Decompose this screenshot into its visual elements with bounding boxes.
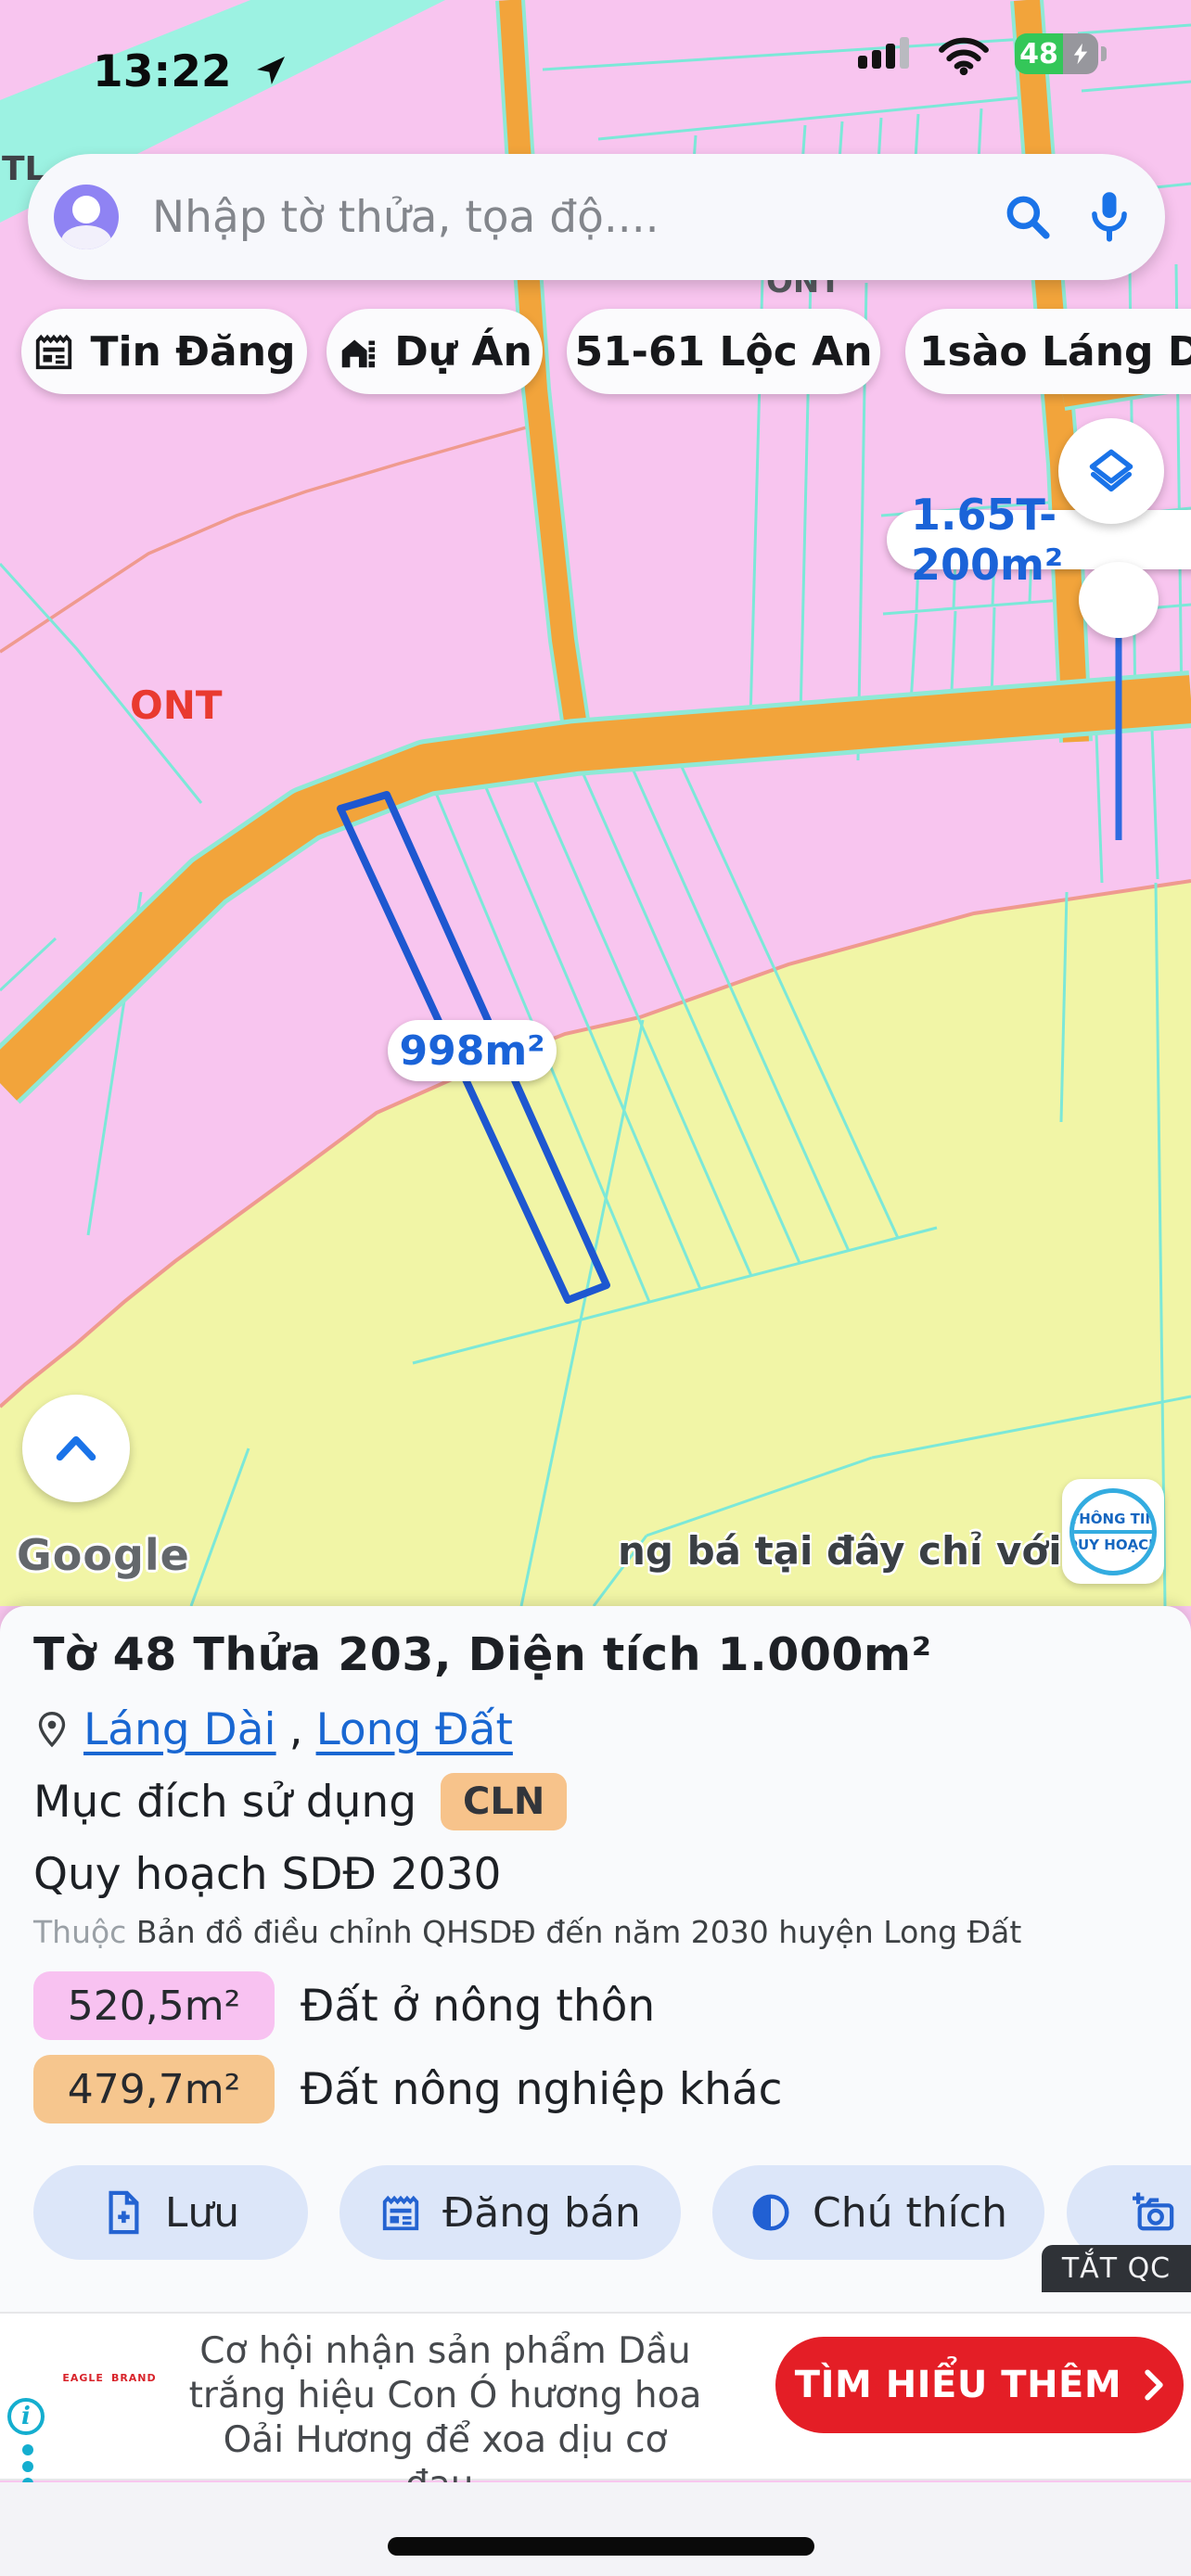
location-arrow-icon (252, 52, 289, 89)
parcel-area-text: 998m² (400, 1027, 545, 1075)
chip-saved-search-1[interactable]: 51-61 Lộc An (567, 309, 880, 394)
listing-news-icon (379, 2191, 422, 2234)
signal-bar (886, 44, 895, 69)
purpose-code-badge: CLN (441, 1773, 567, 1830)
chip-saved-search-2[interactable]: 1sào Láng Dà (905, 309, 1191, 394)
contrast-icon (749, 2191, 792, 2234)
purpose-label: Mục đích sử dụng (33, 1777, 416, 1828)
chevron-up-icon (51, 1430, 101, 1467)
signal-bar (858, 56, 867, 69)
search-bar[interactable]: Nhập tờ thửa, tọa độ.... (28, 154, 1165, 280)
google-watermark: Google (17, 1530, 190, 1580)
avatar[interactable] (54, 185, 119, 249)
purpose-row: Mục đích sử dụng CLN (33, 1773, 567, 1830)
zone-area-badge: 520,5m² (33, 1971, 275, 2040)
wifi-icon (937, 35, 991, 76)
selected-parcel-area-pill: 998m² (388, 1020, 557, 1081)
zone-label: Đất ở nông thôn (301, 1981, 655, 2032)
chip-du-an[interactable]: Dự Án (327, 309, 543, 394)
post-listing-button[interactable]: Đăng bán (339, 2165, 681, 2260)
save-button[interactable]: Lưu (33, 2165, 308, 2260)
search-input[interactable]: Nhập tờ thửa, tọa độ.... (152, 192, 1002, 243)
planning-info-emblem: THÔNG TIN QUY HOẠCH (1069, 1488, 1157, 1575)
location-row: Láng Dài , Long Đất (33, 1704, 513, 1755)
listing-price-pill[interactable]: 1.65T-200m² (887, 510, 1191, 569)
ad-menu-dot[interactable] (22, 2461, 33, 2472)
parcel-title: Tờ 48 Thửa 203, Diện tích 1.000m² (33, 1628, 932, 1681)
chevron-right-icon (1144, 2369, 1164, 2401)
ad-cta-label: TÌM HIỂU THÊM (795, 2364, 1121, 2406)
qh-badge-divider (1069, 1530, 1157, 1534)
battery-percent: 48 (1015, 33, 1063, 74)
qh-badge-line2: QUY HOẠCH (1069, 1536, 1157, 1554)
plan-source-text: Bản đồ điều chỉnh QHSDĐ đến năm 2030 huy… (136, 1914, 1022, 1950)
planning-info-badge[interactable]: THÔNG TIN QUY HOẠCH (1062, 1479, 1164, 1584)
camera-plus-icon (1131, 2191, 1177, 2234)
ad-menu-dot[interactable] (22, 2444, 33, 2455)
ad-text: Cơ hội nhận sản phẩm Dầu trắng hiệu Con … (182, 2329, 709, 2507)
zone-row-residential: 520,5m² Đất ở nông thôn (33, 1971, 655, 2040)
ad-cta-button[interactable]: TÌM HIỂU THÊM (775, 2337, 1184, 2433)
bottom-safe-area (0, 2482, 1191, 2576)
dismiss-ad-button[interactable]: TẮT QC (1042, 2245, 1191, 2292)
action-label: Đăng bán (442, 2189, 641, 2237)
ad-info-icon[interactable]: i (7, 2398, 45, 2435)
cellular-signal-icon (858, 37, 919, 69)
location-link-commune[interactable]: Láng Dài (83, 1704, 276, 1755)
layers-button[interactable] (1058, 418, 1164, 524)
status-time: 13:22 (93, 46, 232, 97)
action-label: Lưu (165, 2189, 239, 2237)
charging-bolt-icon (1063, 33, 1098, 74)
location-link-district[interactable]: Long Đất (316, 1704, 513, 1755)
brand-word-left: EAGLE (62, 2372, 104, 2384)
ad-brand-logo: EAGLE BRAND (63, 2365, 156, 2391)
battery-indicator: 48 (1015, 33, 1098, 74)
location-separator: , (289, 1704, 303, 1755)
chip-label: 51-61 Lộc An (574, 328, 872, 376)
signal-bar (900, 37, 909, 69)
listing-marker[interactable] (1079, 562, 1159, 638)
search-icon[interactable] (1002, 191, 1054, 243)
chip-label: Dự Án (394, 328, 532, 376)
app-screen: TL ONT ONT 998m² 1.65T-200m² Google ng b… (0, 0, 1191, 2576)
news-icon (32, 330, 75, 373)
collapse-panel-button[interactable] (22, 1395, 130, 1502)
mic-icon[interactable] (1085, 189, 1133, 245)
map-pin-icon (33, 1709, 70, 1752)
save-doc-icon (102, 2189, 145, 2236)
zone-label: Đất nông nghiệp khác (301, 2064, 783, 2115)
action-label: Chú thích (813, 2189, 1007, 2237)
project-house-icon (337, 330, 379, 373)
chip-label: 1sào Láng Dà (919, 328, 1191, 376)
zone-area-badge: 479,7m² (33, 2055, 275, 2123)
chip-tin-dang[interactable]: Tin Đăng (21, 309, 307, 394)
plan-source: Thuộc Bản đồ điều chỉnh QHSDĐ đến năm 20… (33, 1914, 1021, 1950)
signal-bar (872, 50, 881, 69)
plan-title: Quy hoạch SDĐ 2030 (33, 1849, 501, 1900)
avatar-body (61, 225, 111, 249)
home-indicator[interactable] (388, 2537, 814, 2556)
map-label-ont: ONT (130, 682, 223, 728)
zone-row-agricultural: 479,7m² Đất nông nghiệp khác (33, 2055, 783, 2123)
chip-label: Tin Đăng (90, 328, 295, 376)
layers-icon (1084, 444, 1138, 498)
battery-cap (1101, 46, 1107, 61)
plan-source-prefix: Thuộc (33, 1914, 126, 1950)
brand-word-right: BRAND (111, 2372, 157, 2384)
avatar-head (72, 196, 100, 223)
qh-badge-line1: THÔNG TIN (1069, 1510, 1157, 1528)
legend-button[interactable]: Chú thích (712, 2165, 1044, 2260)
